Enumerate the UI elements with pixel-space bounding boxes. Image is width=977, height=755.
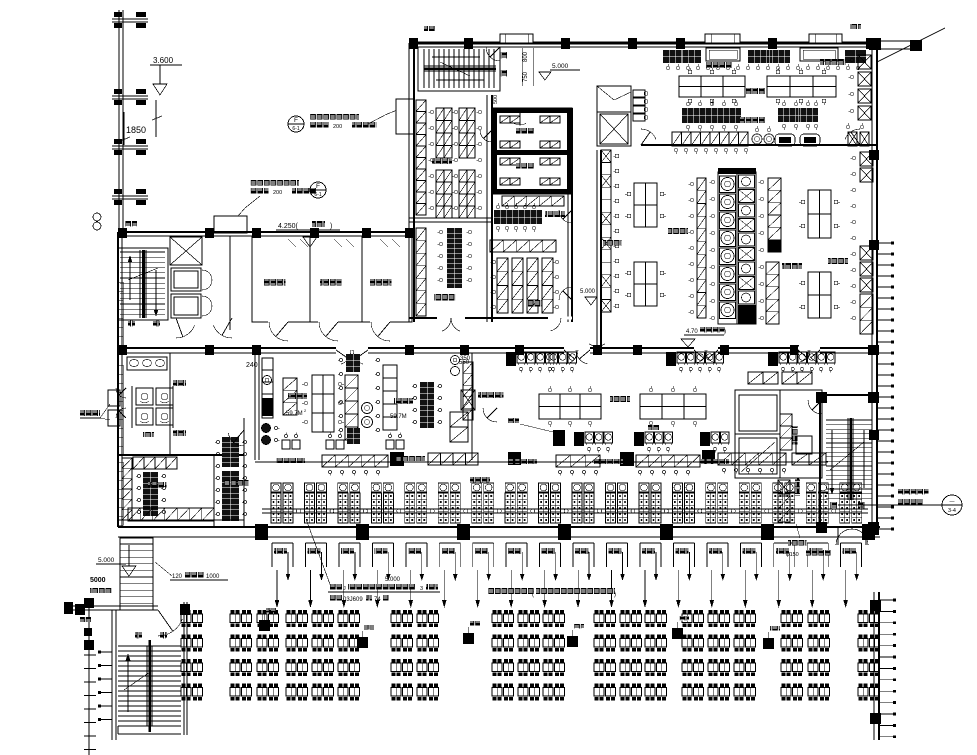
svg-text:500: 500: [493, 95, 499, 104]
svg-text:5.000: 5.000: [552, 63, 569, 70]
svg-text:3.600: 3.600: [153, 56, 174, 65]
svg-text:5.000: 5.000: [580, 289, 596, 295]
svg-text:4.250(: 4.250(: [278, 223, 299, 230]
svg-text:200: 200: [273, 190, 282, 196]
svg-text:5.000: 5.000: [385, 577, 401, 583]
svg-text:750: 750: [523, 71, 529, 82]
svg-text:4.70: 4.70: [686, 329, 698, 335]
svg-text:1850: 1850: [126, 125, 146, 135]
svg-text:74: 74: [374, 597, 381, 603]
svg-text:800: 800: [523, 51, 529, 62]
svg-text:5.000: 5.000: [98, 557, 115, 564]
svg-text:): ): [614, 592, 616, 598]
svg-text:—: —: [950, 499, 955, 505]
svg-text:5000: 5000: [90, 577, 106, 584]
svg-text:03J609: 03J609: [343, 597, 363, 603]
svg-text:350: 350: [460, 356, 471, 362]
svg-text:1000: 1000: [206, 574, 220, 580]
svg-text:φ150: φ150: [786, 552, 799, 558]
svg-text:200: 200: [333, 124, 342, 130]
svg-text:): ): [724, 329, 726, 335]
svg-text:F: F: [294, 117, 298, 124]
svg-text:240: 240: [246, 362, 258, 369]
svg-text:J: J: [343, 586, 346, 592]
svg-text:3-4: 3-4: [948, 508, 956, 514]
svg-text:59.7M: 59.7M: [390, 414, 407, 420]
svg-text:6-1: 6-1: [314, 192, 321, 198]
svg-text:59.7M: 59.7M: [286, 411, 303, 417]
svg-text:3: 3: [420, 586, 423, 592]
svg-text:): ): [330, 223, 332, 230]
svg-text:F: F: [316, 183, 320, 190]
svg-text:120: 120: [172, 574, 183, 580]
svg-text:(: (: [532, 592, 534, 598]
svg-text:6-1: 6-1: [292, 126, 299, 132]
